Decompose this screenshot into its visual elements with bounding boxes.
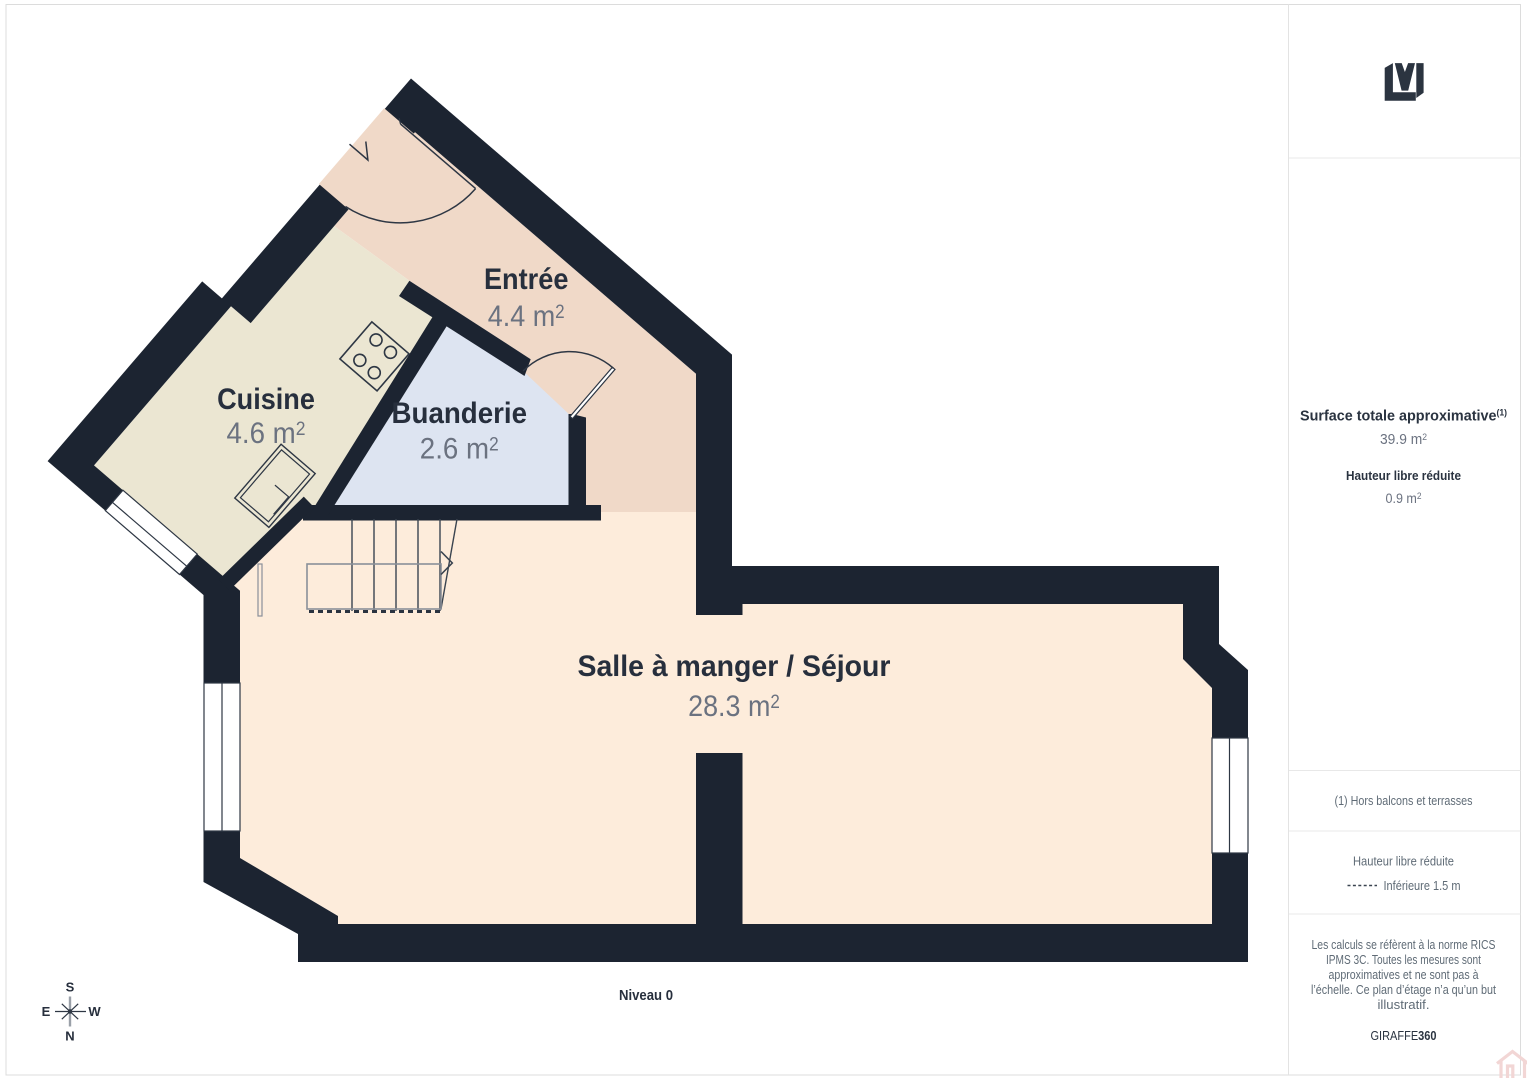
svg-text:approximatives et ne sont pas: approximatives et ne sont pas à	[1329, 968, 1479, 982]
svg-text:Cuisine: Cuisine	[217, 383, 315, 416]
svg-text:E: E	[42, 1004, 51, 1019]
svg-text:S: S	[66, 980, 75, 995]
svg-text:Salle à manger / Séjour: Salle à manger / Séjour	[578, 650, 891, 683]
svg-text:l’échelle. Ce plan d’étage n’a: l’échelle. Ce plan d’étage n’a qu’un but	[1311, 983, 1496, 997]
svg-text:(1) Hors balcons et terrasses: (1) Hors balcons et terrasses	[1335, 794, 1473, 808]
svg-text:4.4 m2: 4.4 m2	[488, 300, 565, 333]
svg-text:Buanderie: Buanderie	[392, 397, 528, 430]
svg-text:illustratif.: illustratif.	[1378, 998, 1430, 1012]
svg-text:39.9 m2: 39.9 m2	[1380, 432, 1427, 448]
svg-text:Inférieure 1.5 m: Inférieure 1.5 m	[1384, 879, 1461, 893]
svg-text:N: N	[65, 1029, 74, 1044]
svg-text:W: W	[88, 1004, 101, 1019]
svg-text:2.6 m2: 2.6 m2	[420, 432, 499, 465]
svg-text:IPMS 3C. Toutes les mesures so: IPMS 3C. Toutes les mesures sont	[1326, 953, 1481, 967]
svg-text:GIRAFFE360: GIRAFFE360	[1371, 1029, 1437, 1043]
svg-text:Les calculs se réfèrent à la n: Les calculs se réfèrent à la norme RICS	[1312, 938, 1496, 952]
svg-text:4.6 m2: 4.6 m2	[227, 417, 306, 450]
svg-text:28.3 m2: 28.3 m2	[688, 690, 780, 723]
svg-text:Surface totale approximative(1: Surface totale approximative(1)	[1300, 408, 1507, 425]
svg-text:Hauteur libre réduite: Hauteur libre réduite	[1353, 855, 1454, 869]
svg-text:Entrée: Entrée	[484, 263, 569, 296]
svg-text:0.9 m2: 0.9 m2	[1386, 491, 1422, 506]
svg-text:Hauteur libre réduite: Hauteur libre réduite	[1346, 468, 1461, 483]
svg-text:Niveau 0: Niveau 0	[619, 988, 673, 1004]
